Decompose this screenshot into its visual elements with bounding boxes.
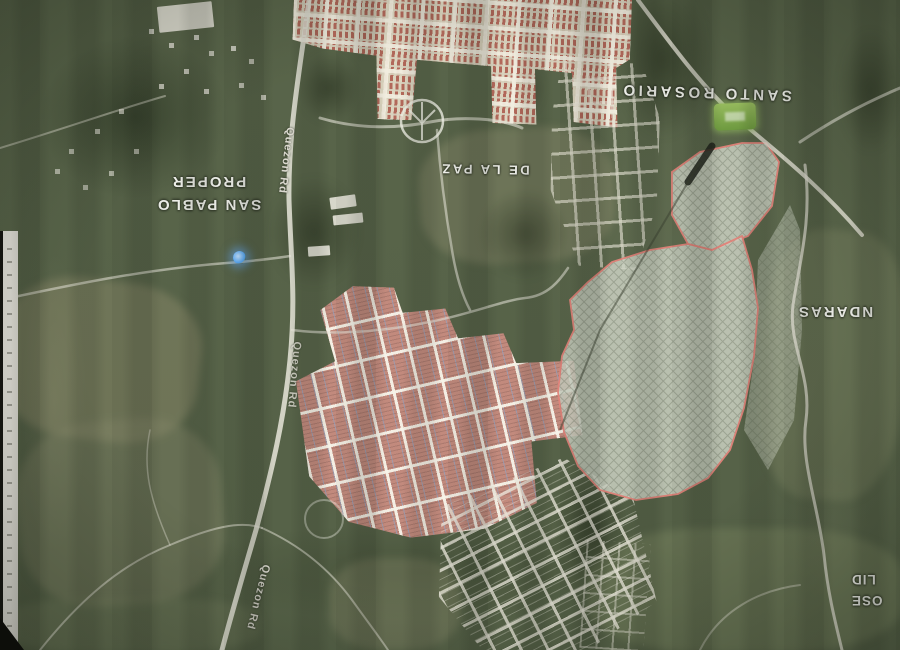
label-fragment-line2: LID	[851, 568, 897, 589]
label-de-la-paz: DE LA PAZ	[440, 161, 530, 178]
label-san-pablo-proper: SAN PABLO PROPER	[156, 170, 261, 215]
satellite-map-photo: SANTO ROSARIO SAN PABLO PROPER DE LA PAZ…	[0, 0, 900, 650]
label-san-pablo-line2: PROPER	[156, 170, 261, 193]
hatched-parcel-main	[558, 236, 758, 500]
road-central	[292, 268, 568, 332]
road-vertical-mid	[437, 130, 470, 310]
label-bottom-right-partial: OSE LID	[851, 568, 897, 610]
road-south	[262, 528, 388, 650]
blue-dot-marker-icon	[233, 251, 246, 264]
quezon-road	[222, 0, 309, 650]
road-branch	[800, 88, 900, 142]
road-northwest	[0, 96, 165, 148]
road-southeast	[700, 585, 800, 650]
label-ndaras-partial: NDARAS	[797, 303, 873, 320]
hatched-parcel-north	[672, 143, 779, 250]
photo-edge-ruler-strip	[0, 231, 18, 650]
road-minor	[147, 430, 170, 545]
route-shield-icon	[714, 102, 757, 130]
park-circle-south-icon	[305, 500, 343, 538]
road-west	[0, 256, 290, 300]
label-fragment-line1: OSE	[851, 589, 897, 610]
label-san-pablo-line1: SAN PABLO	[156, 193, 261, 216]
